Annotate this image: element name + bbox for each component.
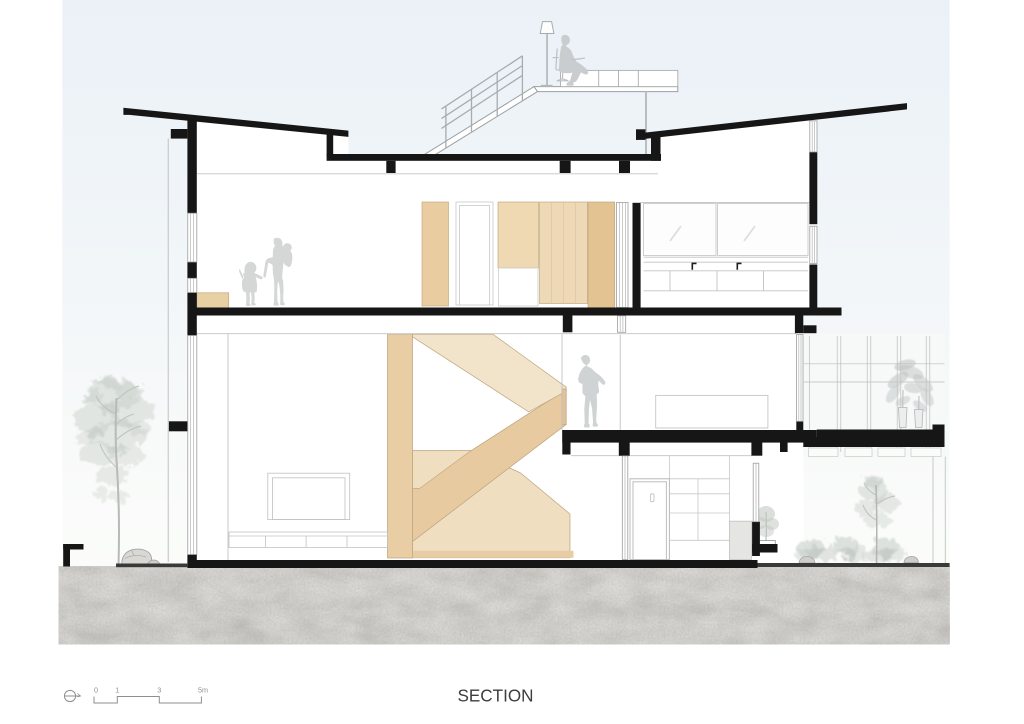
svg-text:5m: 5m (198, 686, 208, 695)
svg-text:SECTION: SECTION (458, 687, 534, 706)
svg-text:3: 3 (157, 686, 161, 695)
svg-text:1: 1 (115, 686, 119, 695)
svg-text:0: 0 (94, 686, 98, 695)
